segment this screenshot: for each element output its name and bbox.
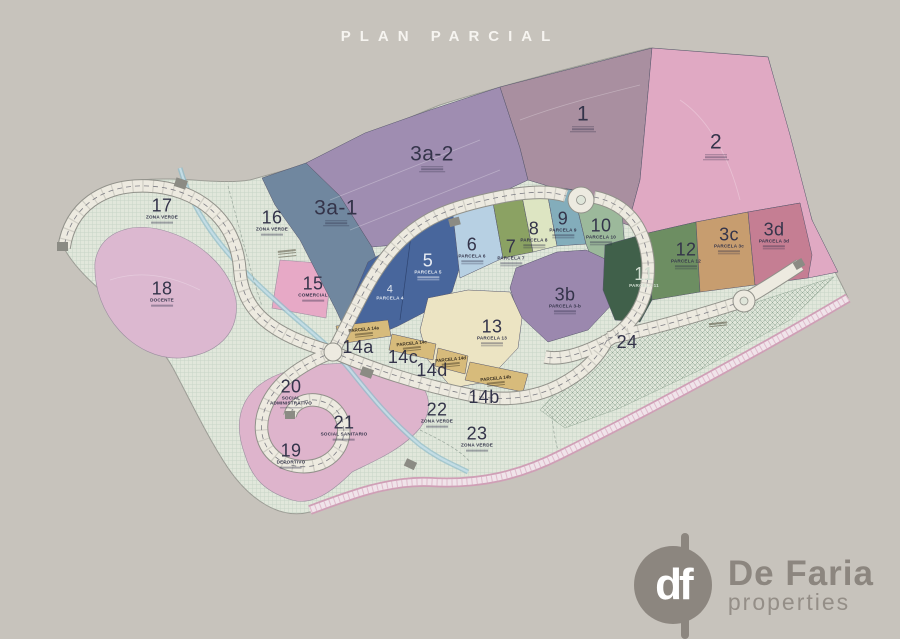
parcel-3c bbox=[696, 212, 755, 292]
logo-monogram-letters: df bbox=[655, 560, 691, 610]
parcel-12 bbox=[648, 222, 700, 300]
logo-name: De Faria bbox=[728, 554, 874, 594]
logo-tagline: properties bbox=[728, 589, 874, 616]
site-plan-map: 1 2 3a-2 3a-1 17 ZONA VERDE 16 ZONA VERD… bbox=[0, 0, 900, 632]
logo-monogram: df bbox=[634, 546, 712, 624]
site-plan-drawing bbox=[0, 0, 900, 632]
logo: df De Faria properties bbox=[634, 546, 874, 624]
logo-text: De Faria properties bbox=[728, 554, 874, 616]
